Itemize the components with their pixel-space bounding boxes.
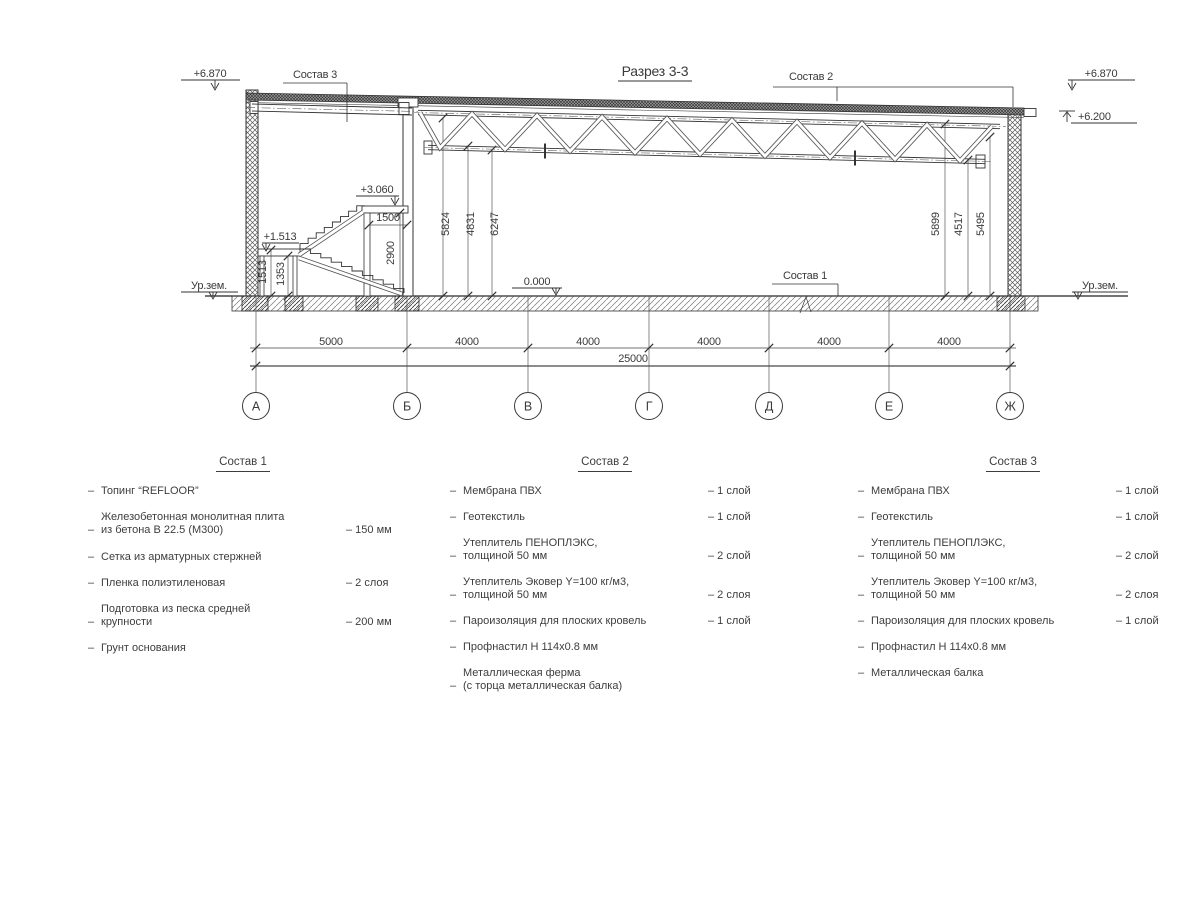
item-dash: – [450, 680, 463, 693]
item-text: Утеплитель ПЕНОПЛЭКС,толщиной 50 мм [871, 537, 1116, 563]
item-dash: – [88, 551, 101, 564]
dim-1353: 1353 [275, 262, 287, 286]
axis-bubble-g: Г [646, 400, 653, 414]
item-text: Железобетонная монолитная плитаиз бетона… [101, 511, 346, 537]
item-dash: – [450, 511, 463, 524]
item-dash: – [88, 524, 101, 537]
item-value: – 1 слой [1116, 511, 1168, 524]
list-item: –Металлическая ферма(с торца металлическ… [450, 667, 760, 693]
dim-6247: 6247 [489, 212, 501, 236]
item-dash: – [450, 550, 463, 563]
dim-1500: 1500 [376, 212, 400, 224]
list-item: –Грунт основания [88, 642, 398, 655]
dim-4517: 4517 [953, 212, 965, 236]
elevation-mark-0000: 0.000 [524, 276, 551, 288]
item-text: Мембрана ПВХ [871, 485, 1116, 498]
landing-post-right [293, 256, 297, 296]
list-title: Состав 2 [450, 456, 760, 472]
item-text: Геотекстиль [871, 511, 1116, 524]
composition-list-1: Состав 1 –Топинг “REFLOOR”–Железобетонна… [88, 456, 398, 668]
item-text: Сетка из арматурных стержней [101, 551, 346, 564]
item-value: – 2 слоя [1116, 589, 1168, 602]
list-item: –Подготовка из песка среднейкрупности– 2… [88, 603, 398, 629]
item-dash: – [88, 642, 101, 655]
callout-sostav-1-label: Состав 1 [783, 270, 827, 282]
composition-list-3: Состав 3 –Мембрана ПВХ– 1 слой–Геотексти… [858, 456, 1168, 693]
dim-total: 25000 [618, 353, 648, 365]
list-item: –Металлическая балка [858, 667, 1168, 680]
list-item: –Утеплитель ПЕНОПЛЭКС,толщиной 50 мм– 2 … [858, 537, 1168, 563]
item-value: – 1 слой [708, 615, 760, 628]
list-item: –Сетка из арматурных стержней [88, 551, 398, 564]
item-dash: – [88, 616, 101, 629]
item-value: – 200 мм [346, 616, 398, 629]
item-dash: – [858, 511, 871, 524]
column-b [403, 100, 413, 296]
list-item: –Пароизоляция для плоских кровель– 1 сло… [450, 615, 760, 628]
item-value: – 2 слоя [708, 589, 760, 602]
item-value: – 150 мм [346, 524, 398, 537]
dim-2900: 2900 [385, 241, 397, 265]
floor-slab [232, 296, 1038, 311]
item-dash: – [858, 667, 871, 680]
list-item: –Топинг “REFLOOR” [88, 485, 398, 498]
item-value: – 1 слой [708, 511, 760, 524]
list-item: –Геотекстиль– 1 слой [450, 511, 760, 524]
item-dash: – [858, 550, 871, 563]
item-dash: – [450, 485, 463, 498]
axis-bubble-v: В [524, 400, 532, 414]
elevation-mark-6870-right: +6.870 [1085, 68, 1118, 80]
list-item: –Утеплитель Эковер Y=100 кг/м3,толщиной … [450, 576, 760, 602]
item-dash: – [858, 485, 871, 498]
list-item: –Мембрана ПВХ– 1 слой [450, 485, 760, 498]
item-value: – 1 слой [1116, 485, 1168, 498]
item-value: – 1 слой [1116, 615, 1168, 628]
item-text: Профнастил Н 114х0.8 мм [871, 641, 1116, 654]
item-value: – 1 слой [708, 485, 760, 498]
elevation-mark-3060: +3.060 [361, 184, 394, 196]
dim-span-5: 4000 [817, 336, 841, 348]
list-item: –Мембрана ПВХ– 1 слой [858, 485, 1168, 498]
item-text: Пароизоляция для плоских кровель [463, 615, 708, 628]
roof-end-cap [1024, 109, 1036, 117]
dim-5495: 5495 [975, 212, 987, 236]
list-item: –Профнастил Н 114х0.8 мм [450, 641, 760, 654]
dim-span-1: 5000 [319, 336, 343, 348]
item-text: Топинг “REFLOOR” [101, 485, 346, 498]
item-text: Профнастил Н 114х0.8 мм [463, 641, 708, 654]
beam-plate-right [399, 103, 409, 115]
dim-span-4: 4000 [697, 336, 721, 348]
axis-bubble-d: Д [765, 400, 774, 414]
dim-5824: 5824 [440, 212, 452, 236]
item-text: Пароизоляция для плоских кровель [871, 615, 1116, 628]
composition-list-2: Состав 2 –Мембрана ПВХ– 1 слой–Геотексти… [450, 456, 760, 706]
dim-span-3: 4000 [576, 336, 600, 348]
list-item: –Утеплитель ПЕНОПЛЭКС,толщиной 50 мм– 2 … [450, 537, 760, 563]
list-title: Состав 1 [88, 456, 398, 472]
item-dash: – [858, 641, 871, 654]
item-value: – 2 слой [708, 550, 760, 563]
elevation-mark-6870-left: +6.870 [194, 68, 227, 80]
list-item: –Утеплитель Эковер Y=100 кг/м3,толщиной … [858, 576, 1168, 602]
list-item: –Пароизоляция для плоских кровель– 1 сло… [858, 615, 1168, 628]
item-dash: – [858, 615, 871, 628]
elevation-mark-6200: +6.200 [1078, 111, 1111, 123]
list-item: –Железобетонная монолитная плитаиз бетон… [88, 511, 398, 537]
item-text: Металлическая балка [871, 667, 1116, 680]
item-text: Грунт основания [101, 642, 346, 655]
elevation-mark-1513: +1.513 [264, 231, 297, 243]
item-text: Мембрана ПВХ [463, 485, 708, 498]
item-value: – 2 слоя [346, 577, 398, 590]
item-dash: – [450, 641, 463, 654]
item-text: Утеплитель ПЕНОПЛЭКС,толщиной 50 мм [463, 537, 708, 563]
item-text: Подготовка из песка среднейкрупности [101, 603, 346, 629]
item-dash: – [450, 589, 463, 602]
item-dash: – [88, 485, 101, 498]
drawing-sheet: Разрез 3-3 Состав 3 Состав 2 Состав 1 +6… [0, 0, 1200, 900]
ground-level-right: Ур.зем. [1082, 280, 1118, 292]
stair-landing [258, 249, 300, 256]
list-item: –Профнастил Н 114х0.8 мм [858, 641, 1168, 654]
axis-bubble-zh: Ж [1004, 400, 1016, 414]
item-text: Утеплитель Эковер Y=100 кг/м3,толщиной 5… [463, 576, 708, 602]
axis-bubble-e: Е [885, 400, 893, 414]
roof-slab [246, 93, 1024, 115]
list-title: Состав 3 [858, 456, 1168, 472]
item-dash: – [450, 615, 463, 628]
item-text: Утеплитель Эковер Y=100 кг/м3,толщиной 5… [871, 576, 1116, 602]
callout-sostav-3-label: Состав 3 [293, 69, 337, 81]
axis-bubble-b: Б [403, 400, 411, 414]
callout-sostav-2-label: Состав 2 [789, 71, 833, 83]
dim-4831: 4831 [465, 212, 477, 236]
dim-1513: 1513 [257, 260, 269, 284]
item-value: – 2 слой [1116, 550, 1168, 563]
item-dash: – [858, 589, 871, 602]
right-wall [1008, 114, 1021, 296]
item-text: Пленка полиэтиленовая [101, 577, 346, 590]
dim-span-6: 4000 [937, 336, 961, 348]
dim-5899: 5899 [930, 212, 942, 236]
dim-span-2: 4000 [455, 336, 479, 348]
list-items: –Мембрана ПВХ– 1 слой–Геотекстиль– 1 сло… [450, 485, 760, 693]
item-dash: – [88, 577, 101, 590]
item-text: Геотекстиль [463, 511, 708, 524]
list-item: –Пленка полиэтиленовая– 2 слоя [88, 577, 398, 590]
section-title: Разрез 3-3 [622, 63, 689, 79]
list-items: –Топинг “REFLOOR”–Железобетонная монолит… [88, 485, 398, 655]
section-drawing: Разрез 3-3 Состав 3 Состав 2 Состав 1 +6… [0, 0, 1200, 440]
ground-level-left: Ур.зем. [191, 280, 227, 292]
grid-bubbles [243, 393, 1024, 420]
list-item: –Геотекстиль– 1 слой [858, 511, 1168, 524]
list-items: –Мембрана ПВХ– 1 слой–Геотекстиль– 1 сло… [858, 485, 1168, 680]
item-text: Металлическая ферма(с торца металлическа… [463, 667, 708, 693]
drawing-geometry [246, 104, 1014, 392]
axis-bubble-a: А [252, 400, 261, 414]
